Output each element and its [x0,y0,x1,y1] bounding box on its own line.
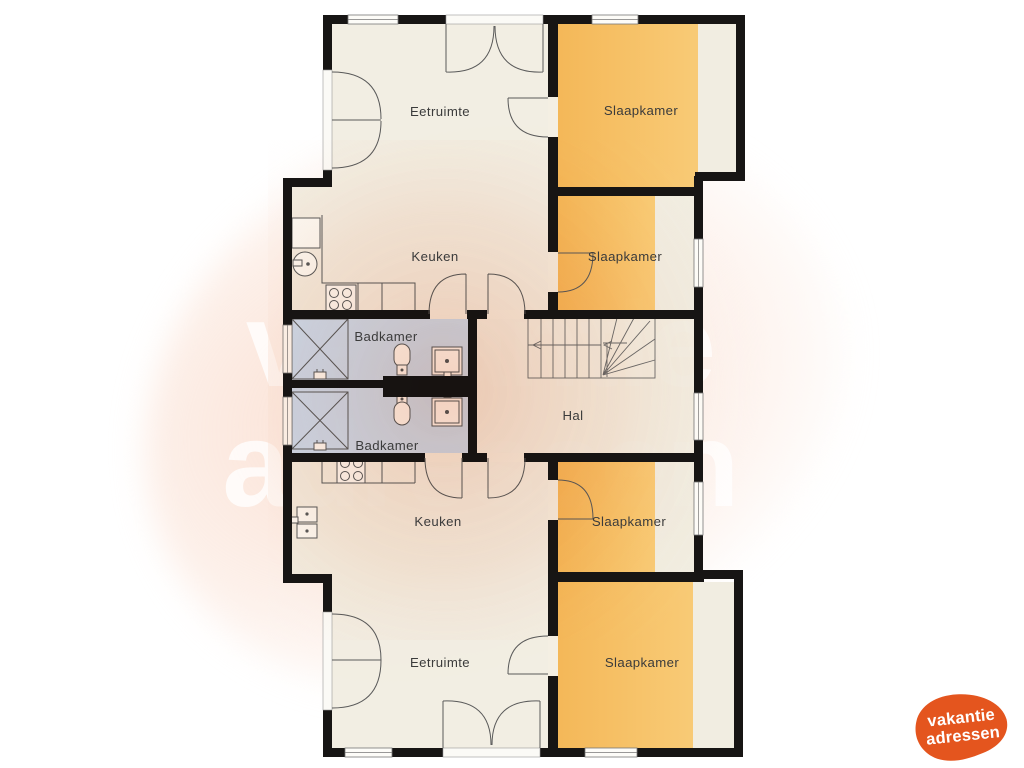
window [585,748,637,757]
room-label-slaapkamer-bottom-2: Slaapkamer [605,655,680,670]
room-label-keuken-top: Keuken [411,249,458,264]
room-label-badkamer-bottom: Badkamer [355,438,419,453]
window [345,748,392,757]
floorplan-page: vakantie adressen [0,0,1024,768]
room-label-badkamer-top: Badkamer [354,329,418,344]
window [592,15,638,24]
tint-overlay [268,140,758,640]
room-label-eetruimte-top: Eetruimte [410,104,470,119]
room-label-slaapkamer-top-2: Slaapkamer [588,249,663,264]
room-label-slaapkamer-bottom-1: Slaapkamer [592,514,667,529]
room-label-keuken-bottom: Keuken [414,514,461,529]
window [348,15,398,24]
room-label-eetruimte-bottom: Eetruimte [410,655,470,670]
room-label-hal: Hal [563,408,584,423]
floor-plan: Eetruimte Slaapkamer Keuken Slaapkamer B… [0,0,1024,768]
brand-logo: vakantie adressen [900,680,1024,768]
room-label-slaapkamer-top-1: Slaapkamer [604,103,679,118]
